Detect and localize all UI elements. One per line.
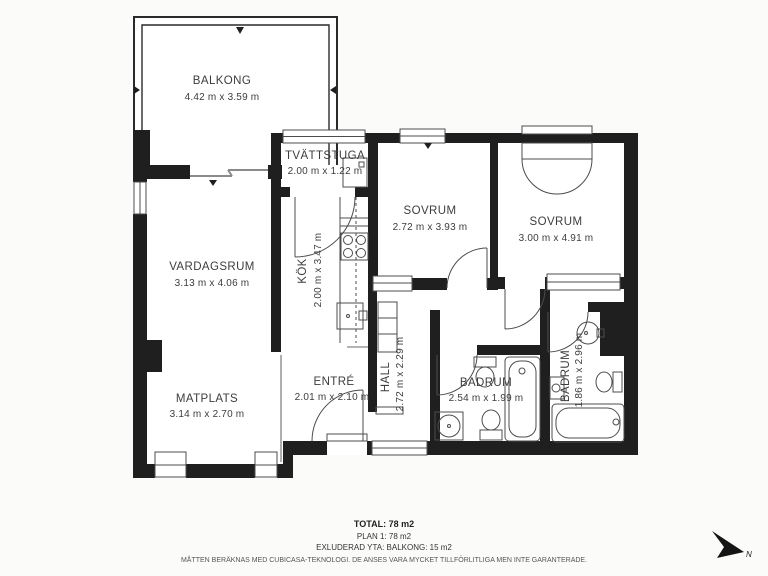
window <box>255 452 277 477</box>
room-label-kok: KÖK <box>297 258 309 284</box>
room-label-entre: ENTRÉ <box>314 375 355 388</box>
room-dims-kok: 2.00 m x 3.47 m <box>313 233 324 308</box>
room-dims-tvattstuga: 2.00 m x 1.22 m <box>288 166 363 177</box>
room-label-sovrum-2: SOVRUM <box>530 216 583 228</box>
room-label-vardagsrum: VARDAGSRUM <box>169 261 255 273</box>
total-area: TOTAL: 78 m2 <box>354 519 414 529</box>
plan-area: PLAN 1: 78 m2 <box>357 532 412 541</box>
window <box>547 274 620 290</box>
room-label-badrum-1: BADRUM <box>460 377 512 389</box>
room-label-balkong: BALKONG <box>193 75 251 87</box>
room-label-matplats: MATPLATS <box>176 393 238 405</box>
room-dims-sovrum-1: 2.72 m x 3.93 m <box>393 222 468 233</box>
room-dims-balkong: 4.42 m x 3.59 m <box>185 92 260 103</box>
room-dims-matplats: 3.14 m x 2.70 m <box>170 409 245 420</box>
room-dims-sovrum-2: 3.00 m x 4.91 m <box>519 233 594 244</box>
window-sill <box>522 126 592 134</box>
window <box>373 276 412 291</box>
room-dims-hall: 2.72 m x 2.29 m <box>395 337 406 412</box>
room-label-tvattstuga: TVÄTTSTUGA <box>285 150 365 162</box>
window <box>155 452 186 477</box>
window <box>134 182 146 214</box>
area-summary: TOTAL: 78 m2 PLAN 1: 78 m2 EXLUDERAD YTA… <box>181 519 587 564</box>
window <box>400 129 445 143</box>
floor-plan-page: BALKONG 4.42 m x 3.59 m TVÄTTSTUGA 2.00 … <box>0 0 768 576</box>
room-dims-badrum-1: 2.54 m x 1.99 m <box>449 393 524 404</box>
disclaimer: MÅTTEN BERÄKNAS MED CUBICASA-TEKNOLOGI. … <box>181 555 587 564</box>
wall-pillar <box>147 340 162 372</box>
room-label-badrum-2: BADRUM <box>560 350 572 402</box>
compass: N <box>712 531 752 559</box>
window <box>372 441 427 455</box>
room-label-hall: HALL <box>380 362 392 393</box>
floor-plan-drawing: BALKONG 4.42 m x 3.59 m TVÄTTSTUGA 2.00 … <box>0 0 768 576</box>
room-label-sovrum-1: SOVRUM <box>404 205 457 217</box>
north-arrow-icon <box>712 531 744 558</box>
room-dims-entre: 2.01 m x 2.10 m <box>295 392 370 403</box>
excluded-area: EXLUDERAD YTA: BALKONG: 15 m2 <box>316 543 452 552</box>
room-dims-vardagsrum: 3.13 m x 4.06 m <box>175 278 250 289</box>
window <box>283 130 365 143</box>
room-dims-badrum-2: 1.86 m x 2.96 m <box>574 333 585 408</box>
north-label: N <box>746 550 752 559</box>
